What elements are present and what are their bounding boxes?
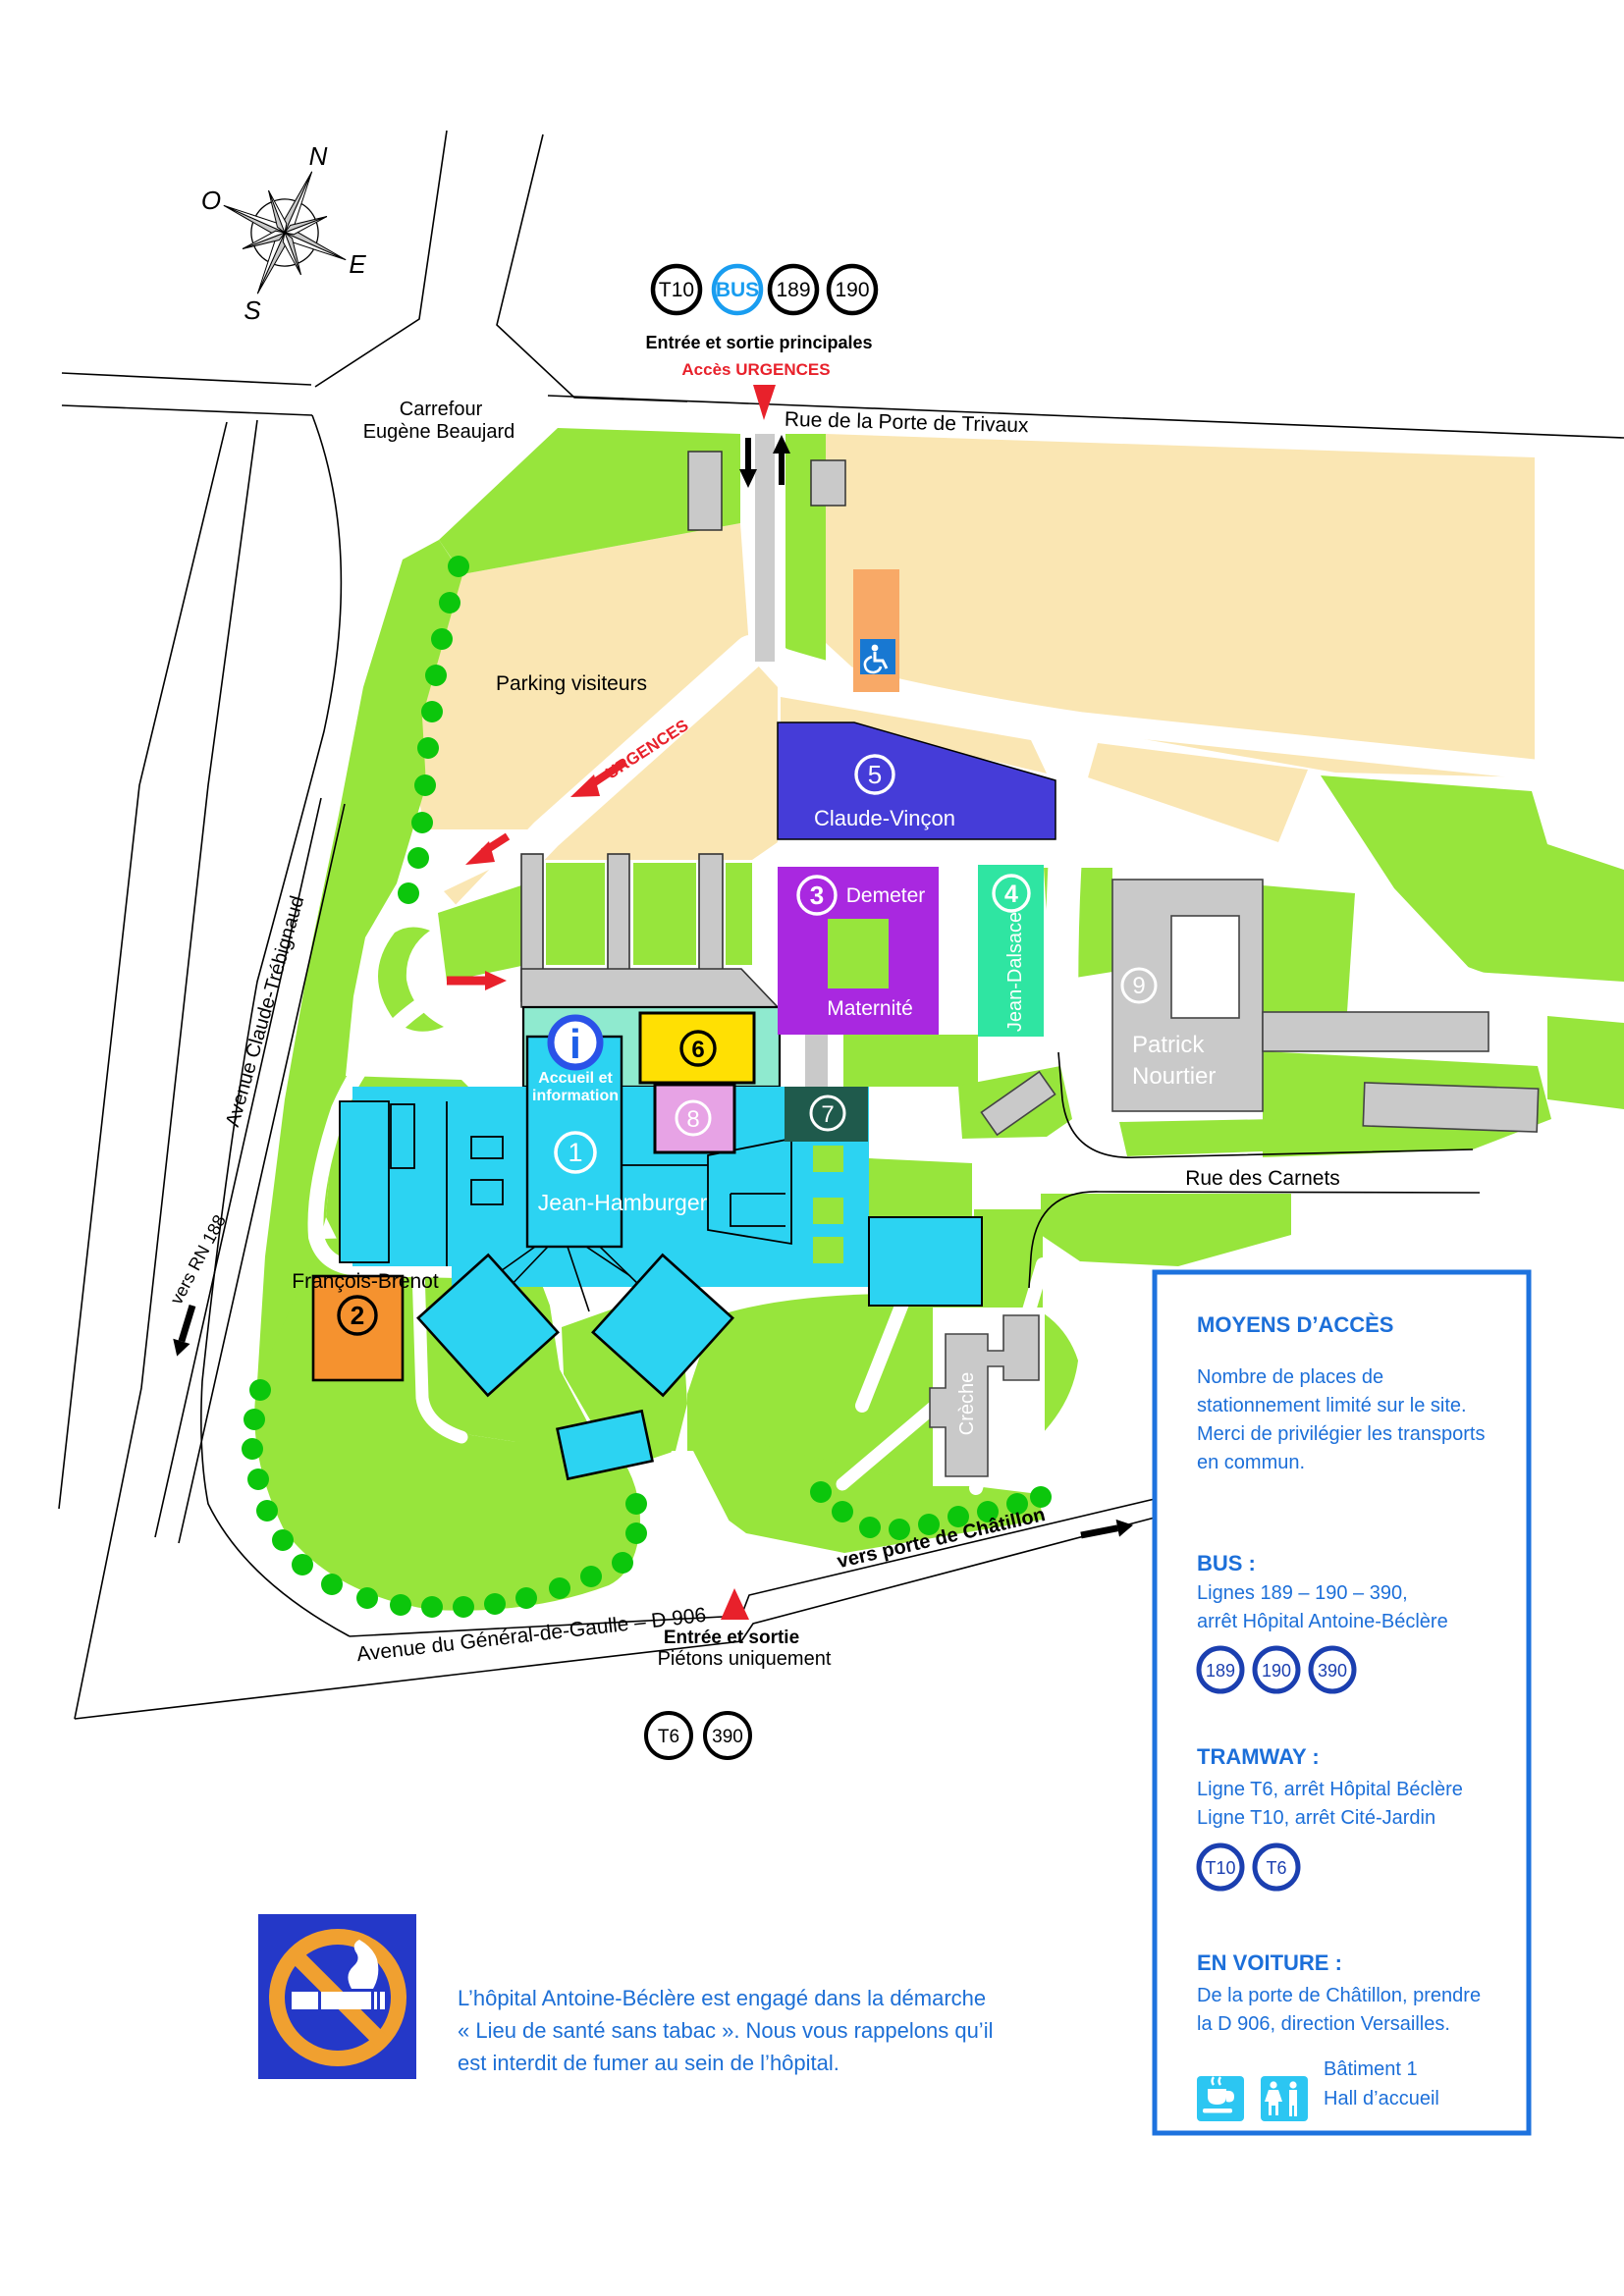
svg-text:S: S <box>244 295 261 325</box>
svg-text:3: 3 <box>810 881 824 910</box>
svg-text:Carrefour: Carrefour <box>400 399 483 420</box>
svg-text:190: 190 <box>1262 1661 1291 1681</box>
svg-text:Ligne T6, arrêt Hôpital Béclèr: Ligne T6, arrêt Hôpital Béclère <box>1197 1779 1463 1800</box>
svg-text:BUS: BUS <box>716 279 759 301</box>
svg-text:E: E <box>349 249 366 279</box>
svg-text:Accueil et: Accueil et <box>538 1070 613 1087</box>
svg-text:T10: T10 <box>659 279 694 301</box>
svg-text:T6: T6 <box>658 1727 679 1747</box>
svg-text:Parking visiteurs: Parking visiteurs <box>496 672 647 695</box>
svg-text:en commun.: en commun. <box>1197 1452 1305 1473</box>
svg-text:Bâtiment 1: Bâtiment 1 <box>1324 2058 1418 2080</box>
svg-text:N: N <box>309 141 328 171</box>
svg-text:BUS :: BUS : <box>1197 1551 1256 1575</box>
svg-text:la D 906, direction Versailles: la D 906, direction Versailles. <box>1197 2013 1450 2035</box>
svg-text:4: 4 <box>1004 881 1018 908</box>
svg-text:Piétons uniquement: Piétons uniquement <box>658 1648 832 1670</box>
svg-text:Accès URGENCES: Accès URGENCES <box>681 360 830 379</box>
svg-text:Eugène Beaujard: Eugène Beaujard <box>363 421 515 443</box>
svg-text:5: 5 <box>868 760 882 789</box>
svg-text:1: 1 <box>568 1138 582 1167</box>
svg-text:7: 7 <box>821 1101 834 1128</box>
svg-text:189: 189 <box>1206 1661 1235 1681</box>
svg-text:Claude-Vinçon: Claude-Vinçon <box>814 806 955 830</box>
svg-text:9: 9 <box>1132 973 1145 999</box>
svg-text:TRAMWAY :: TRAMWAY : <box>1197 1744 1320 1769</box>
svg-text:arrêt Hôpital Antoine-Béclère: arrêt Hôpital Antoine-Béclère <box>1197 1611 1448 1632</box>
svg-text:Jean-Dalsace: Jean-Dalsace <box>1004 912 1026 1032</box>
svg-text:Merci de privilégier les trans: Merci de privilégier les transports <box>1197 1423 1485 1445</box>
svg-text:T10: T10 <box>1205 1858 1235 1878</box>
svg-text:Entrée et sortie: Entrée et sortie <box>664 1628 799 1648</box>
svg-text:Ligne T10, arrêt Cité-Jardin: Ligne T10, arrêt Cité-Jardin <box>1197 1807 1435 1829</box>
svg-text:Rue des Carnets: Rue des Carnets <box>1185 1167 1340 1190</box>
svg-text:O: O <box>201 186 221 215</box>
svg-text:Demeter: Demeter <box>846 884 926 907</box>
svg-text:390: 390 <box>1318 1661 1347 1681</box>
svg-text:Nombre de places de: Nombre de places de <box>1197 1366 1383 1388</box>
svg-text:2: 2 <box>351 1301 364 1330</box>
svg-text:Patrick: Patrick <box>1132 1032 1205 1058</box>
svg-text:Maternité: Maternité <box>827 997 913 1020</box>
svg-text:Nourtier: Nourtier <box>1132 1063 1216 1090</box>
svg-text:« Lieu de santé sans tabac ».: « Lieu de santé sans tabac ». Nous vous … <box>458 2018 993 2043</box>
svg-text:8: 8 <box>686 1106 699 1133</box>
svg-text:Jean-Hamburger: Jean-Hamburger <box>538 1190 708 1215</box>
svg-text:stationnement limité sur le si: stationnement limité sur le site. <box>1197 1395 1467 1416</box>
svg-text:190: 190 <box>835 279 869 301</box>
svg-text:est interdit de fumer au sein: est interdit de fumer au sein de l’hôpit… <box>458 2051 839 2075</box>
svg-text:189: 189 <box>776 279 810 301</box>
svg-text:De la porte de Châtillon, pren: De la porte de Châtillon, prendre <box>1197 1985 1481 2006</box>
svg-text:T6: T6 <box>1266 1858 1286 1878</box>
svg-text:MOYENS D’ACCÈS: MOYENS D’ACCÈS <box>1197 1312 1393 1337</box>
svg-text:EN VOITURE :: EN VOITURE : <box>1197 1950 1342 1975</box>
svg-text:Lignes 189 – 190 – 390,: Lignes 189 – 190 – 390, <box>1197 1582 1408 1604</box>
svg-text:L’hôpital Antoine-Béclère est: L’hôpital Antoine-Béclère est engagé dan… <box>458 1986 986 2010</box>
svg-text:Crèche: Crèche <box>956 1372 978 1435</box>
svg-text:6: 6 <box>691 1037 704 1063</box>
svg-text:François-Brenot: François-Brenot <box>292 1270 439 1293</box>
svg-text:i: i <box>569 1021 581 1067</box>
svg-text:information: information <box>532 1088 619 1104</box>
svg-text:Entrée et sortie principales: Entrée et sortie principales <box>645 333 872 352</box>
svg-text:390: 390 <box>712 1727 743 1747</box>
svg-text:Hall d’accueil: Hall d’accueil <box>1324 2088 1439 2109</box>
